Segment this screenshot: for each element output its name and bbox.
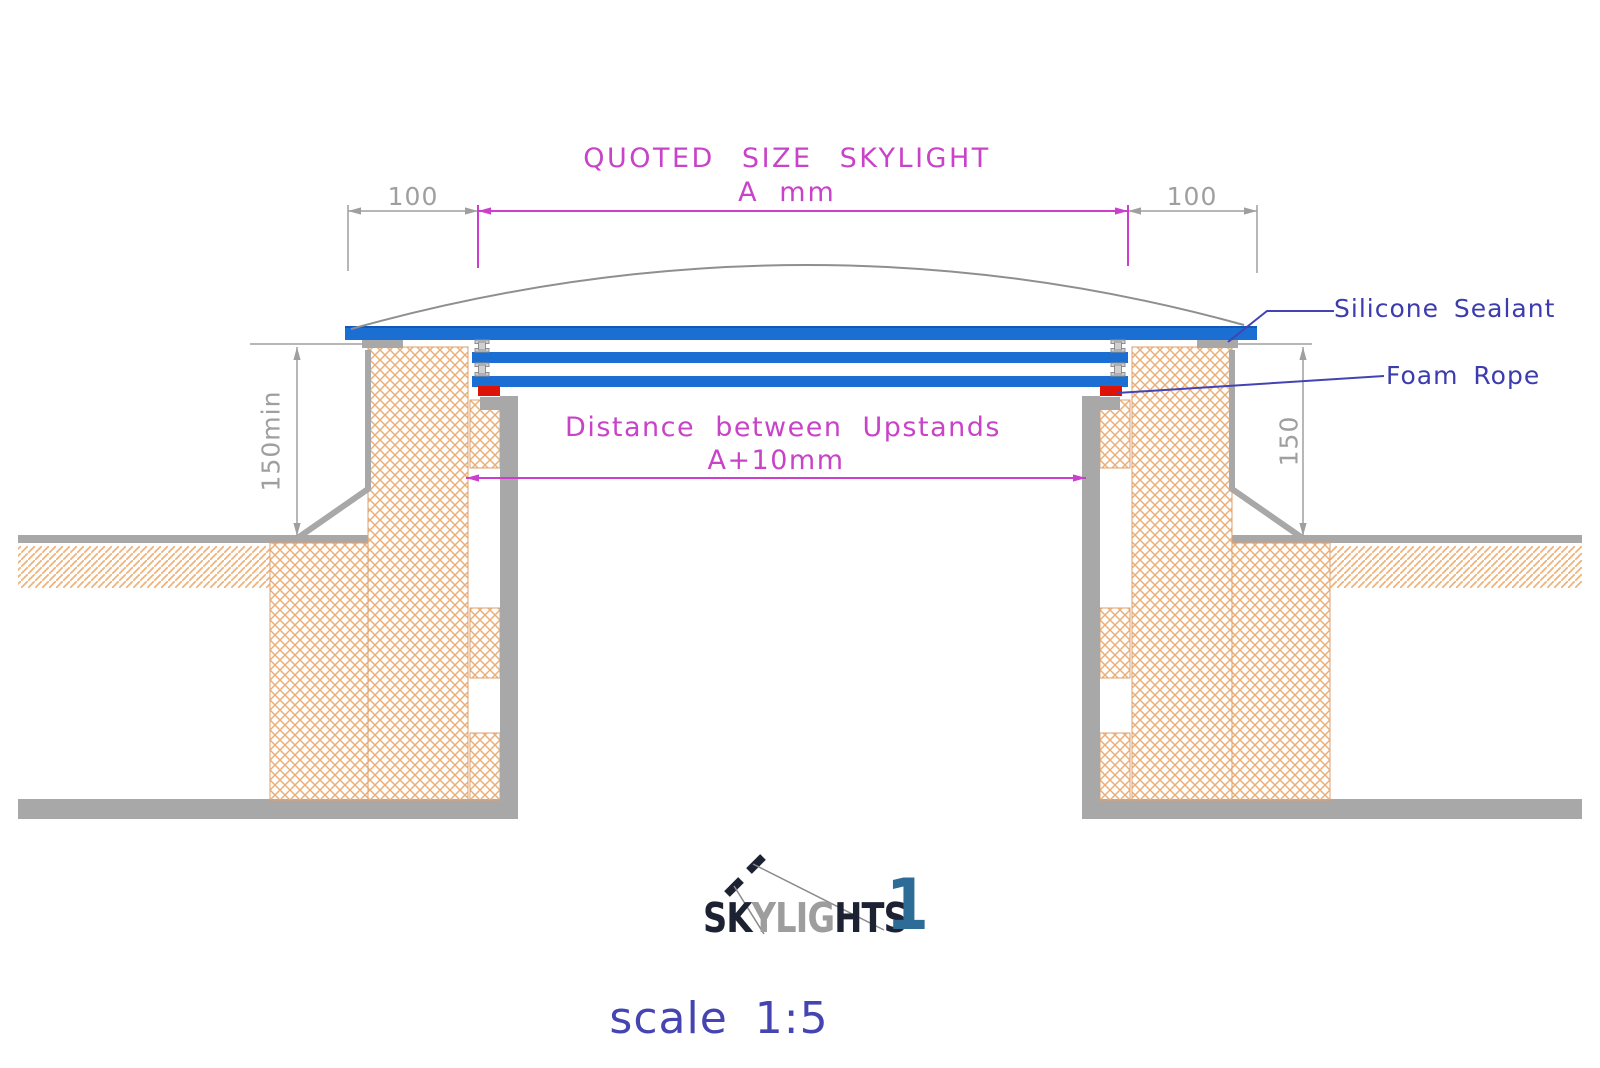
packer-right-mid xyxy=(1100,608,1130,678)
spacer-left-lower xyxy=(475,363,489,376)
ceiling-left xyxy=(18,799,518,819)
spacer-right-upper xyxy=(1111,340,1125,352)
kerb-cap-right xyxy=(1197,340,1238,348)
dim-right-overhang-value: 100 xyxy=(1167,182,1218,211)
dim-right-upstand-height-value: 150 xyxy=(1275,416,1304,467)
lining-left xyxy=(500,396,518,800)
ceiling-right xyxy=(1082,799,1582,819)
glazing-layer-2 xyxy=(472,352,1128,363)
roof-insulation-right xyxy=(1330,546,1582,588)
quoted-size-title: QUOTED SIZE SKYLIGHT xyxy=(583,143,991,174)
upstand-span-value: A+10mm xyxy=(707,445,844,476)
scale-note: scale 1:5 xyxy=(609,993,828,1044)
flashing-left xyxy=(299,350,368,537)
packer-right-bottom xyxy=(1100,733,1130,800)
logo-ray-thick-upper xyxy=(749,857,763,871)
wall-column-left-outer xyxy=(270,543,368,800)
wall-column-right-outer xyxy=(1232,543,1330,800)
dim-left-upstand-height-value: 150min xyxy=(257,391,286,492)
spacer-right-lower xyxy=(1111,363,1125,376)
roof-deck-left xyxy=(18,535,368,543)
upstand-left xyxy=(368,347,468,800)
logo-numeral-one: 1 xyxy=(886,872,929,939)
foam-rope-left xyxy=(478,386,500,396)
quoted-size-subtitle: A mm xyxy=(738,177,836,208)
lining-right xyxy=(1082,396,1100,800)
silicone-sealant-label: Silicone Sealant xyxy=(1334,294,1555,323)
roof-insulation-left xyxy=(18,546,270,588)
packer-left-bottom xyxy=(470,733,500,800)
logo-wordmark: SKYLIGHTS xyxy=(703,898,907,939)
spacer-left-upper xyxy=(475,340,489,352)
upstand-span-label: Distance between Upstands xyxy=(565,412,1001,443)
skylight-section-drawing: QUOTED SIZE SKYLIGHT A mm 100 100 150min… xyxy=(0,0,1600,1068)
lining-step-left xyxy=(480,397,500,410)
upstand-right xyxy=(1132,347,1232,800)
glazing-layer-3 xyxy=(472,376,1128,387)
dome-curve xyxy=(351,265,1244,329)
foam-rope-right xyxy=(1100,386,1122,396)
glass-top-edge xyxy=(345,326,1257,328)
packer-left-top xyxy=(470,400,500,468)
logo-text-sk: SK xyxy=(703,894,752,942)
roof-deck-right xyxy=(1232,535,1582,543)
packer-right-top xyxy=(1100,400,1130,468)
glazing-layer-1 xyxy=(345,328,1257,340)
kerb-cap-left xyxy=(362,340,403,348)
packer-left-mid xyxy=(470,608,500,678)
lining-step-right xyxy=(1100,397,1120,410)
logo-text-ylig: YLIG xyxy=(752,894,835,942)
foam-rope-label: Foam Rope xyxy=(1386,361,1540,390)
dim-left-overhang-value: 100 xyxy=(388,182,439,211)
